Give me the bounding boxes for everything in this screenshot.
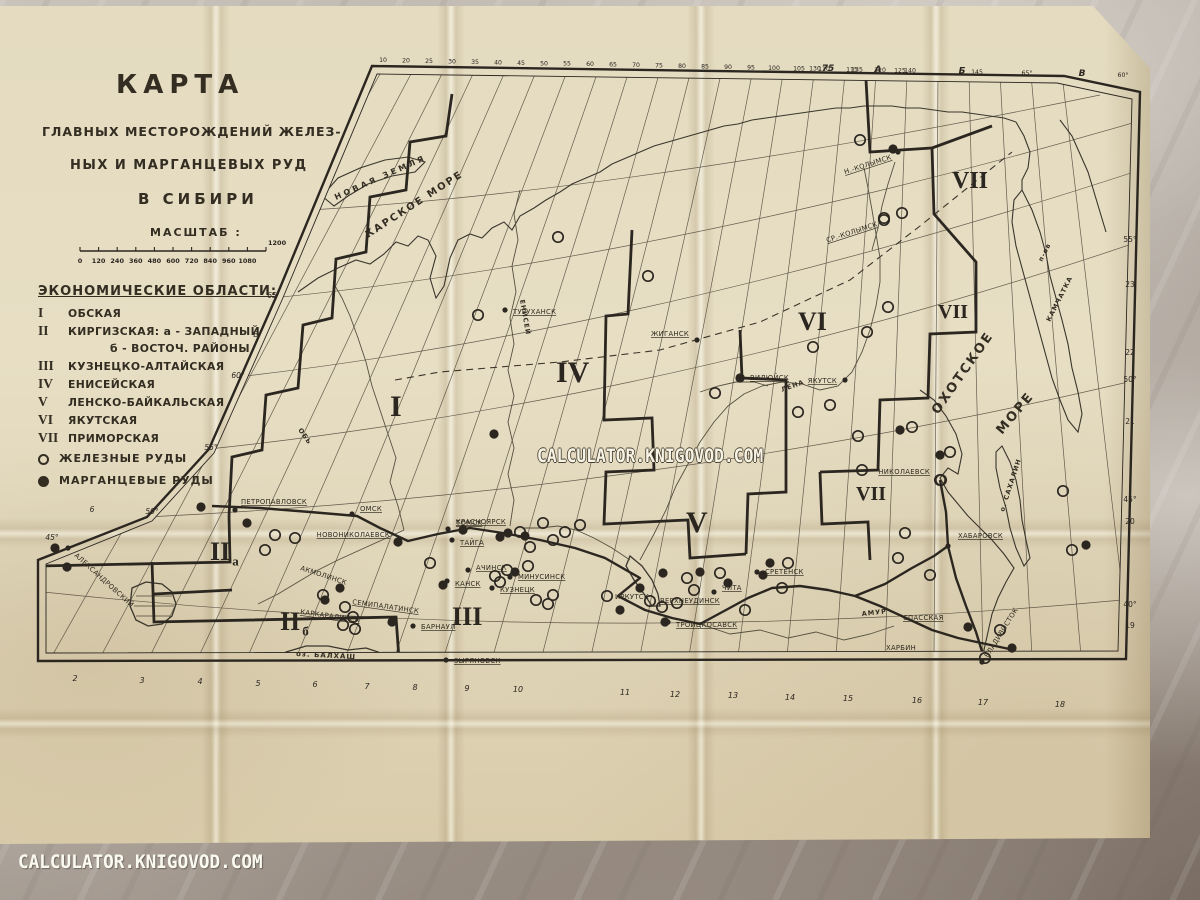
scale-tick-number: 960 xyxy=(222,257,236,265)
iron-ore-symbol xyxy=(783,558,793,568)
iron-ore-symbol xyxy=(945,447,955,457)
symbol-label: ЖЕЛЕЗНЫЕ РУДЫ xyxy=(59,449,187,469)
top-edge-number: 10 xyxy=(379,57,387,64)
iron-ore-symbol xyxy=(473,310,483,320)
bottom-edge-number: 11 xyxy=(620,688,630,697)
region-name: ЯКУТСКАЯ xyxy=(68,412,137,429)
region-numeral: V xyxy=(38,393,68,410)
top-edge-number: 60° xyxy=(1118,71,1129,79)
city-label: СРЕТЕНСК xyxy=(765,568,804,576)
manganese-ore-symbol xyxy=(963,622,972,631)
city-dot xyxy=(393,537,402,546)
scale-end-number: 1200 xyxy=(268,239,287,247)
iron-ore-icon xyxy=(38,454,49,465)
city-label: КАРКАРАЛИНСК xyxy=(300,608,361,624)
city-label: ЖИГАНСК xyxy=(651,330,689,338)
city-dot xyxy=(502,307,507,312)
city-dot xyxy=(449,537,454,542)
city-label: ТАЙГА xyxy=(459,538,484,547)
legend-region-row: VII ПРИМОРСКАЯ xyxy=(38,429,306,447)
top-edge-number: 70 xyxy=(632,62,640,69)
city-dot xyxy=(503,528,512,537)
bottom-edge-number: 10 xyxy=(513,685,523,694)
city-label: АЛЕКСАНДРОВСКИЙ xyxy=(73,551,136,609)
region-name: ПРИМОРСКАЯ xyxy=(68,430,159,447)
bottom-edge-number: 12 xyxy=(670,690,680,699)
bottom-edge-number: 13 xyxy=(728,691,738,700)
meridian-line xyxy=(444,74,628,656)
iron-ore-symbol xyxy=(525,542,535,552)
parallel-line xyxy=(44,592,1122,623)
city-label: ТРОИЦКОСАВСК xyxy=(675,621,737,629)
city-label: НИКОЛАЕВСК xyxy=(878,468,930,476)
manganese-ore-symbol xyxy=(635,583,644,592)
manganese-ore-symbol xyxy=(1007,643,1016,652)
manganese-ore-symbol xyxy=(196,502,205,511)
city-label: ЗЫРЯНОВСК xyxy=(454,657,501,665)
top-edge-number: 85 xyxy=(701,64,709,71)
right-edge-number: 55° xyxy=(1123,235,1137,244)
iron-ore-symbol xyxy=(538,518,548,528)
coastline xyxy=(1016,122,1030,190)
legend-symbol-row-manganese: МАРГАНЦЕВЫЕ РУДЫ xyxy=(38,471,306,491)
iron-ore-symbol xyxy=(900,528,910,538)
top-edge-number: 40 xyxy=(494,59,502,66)
meridian-line xyxy=(1000,74,1032,656)
iron-ore-symbol xyxy=(862,327,872,337)
top-edge-number: 45 xyxy=(517,60,525,67)
top-edge-number: 145 xyxy=(971,69,983,76)
meridian-line xyxy=(640,74,752,656)
region-numeral-label: VI xyxy=(798,307,827,336)
city-dot xyxy=(443,657,448,662)
iron-ore-symbol xyxy=(560,527,570,537)
scale-bar: 012024036048060072084096010801200 xyxy=(78,239,287,265)
right-edge-number: 40° xyxy=(1123,600,1137,609)
region-boundary xyxy=(152,562,399,659)
region-numeral-label: IV xyxy=(556,356,590,389)
city-label: ТУРУХАНСК xyxy=(512,308,556,316)
city-dot xyxy=(444,578,449,583)
iron-ore-symbol xyxy=(340,602,350,612)
scale-tick-number: 1080 xyxy=(238,257,257,265)
right-edge-number: 45° xyxy=(1123,495,1137,504)
legend-region-row: б - ВОСТОЧ. РАЙОНЫ xyxy=(38,340,306,357)
region-numeral-label: IIа xyxy=(210,537,239,569)
city-label: БАРНАУЛ xyxy=(421,623,456,631)
right-edge-number: 21 xyxy=(1125,417,1135,426)
city-dot xyxy=(232,507,237,512)
region-numeral: I xyxy=(38,304,68,321)
geo-label: АМУР xyxy=(861,607,887,618)
coastline xyxy=(298,106,1016,298)
legend-region-row: IV ЕНИСЕЙСКАЯ xyxy=(38,375,306,393)
region-name: ЛЕНСКО-БАЙКАЛЬСКАЯ xyxy=(68,394,224,411)
bottom-edge-number: 2 xyxy=(72,674,77,683)
right-edge-number: 20 xyxy=(1125,517,1135,526)
city-dot xyxy=(65,545,70,550)
bottom-edge-number: 9 xyxy=(464,684,469,693)
region-numeral-label: III xyxy=(452,602,482,631)
city-label: ИРКУТСК xyxy=(615,593,649,601)
city-label: Н.-КОЛЫМСК xyxy=(843,153,893,176)
top-edge-number: 90 xyxy=(724,64,732,71)
city-dot xyxy=(507,574,512,579)
top-edge-number: 25 xyxy=(425,58,433,65)
region-numeral: III xyxy=(38,357,68,374)
top-edge-number: 95 xyxy=(747,64,755,71)
iron-ore-symbol xyxy=(853,431,863,441)
geo-label: ЕНИСЕЙ xyxy=(518,299,533,336)
city-dot xyxy=(665,619,670,624)
top-edge-number: 55 xyxy=(563,61,571,68)
bottom-edge-number: 8 xyxy=(412,683,417,692)
right-edge-number: 23 xyxy=(1125,280,1135,289)
river xyxy=(508,190,520,526)
map-subtitle-2: НЫХ И МАРГАНЦЕВЫХ РУД xyxy=(70,158,308,173)
legend-region-row: V ЛЕНСКО-БАЙКАЛЬСКАЯ xyxy=(38,393,306,411)
iron-ore-symbol xyxy=(425,558,435,568)
left-edge-number: 45° xyxy=(45,533,59,542)
city-dot xyxy=(895,149,900,154)
legend-region-row: II КИРГИЗСКАЯ: а - ЗАПАДНЫЙ xyxy=(38,322,306,340)
iron-ore-symbol xyxy=(682,573,692,583)
scale-tick-number: 720 xyxy=(185,257,199,265)
scale-tick-number: 360 xyxy=(129,257,143,265)
bottom-edge-number: 17 xyxy=(978,698,989,707)
region-numeral-label: VII xyxy=(938,301,968,323)
photo-of-folded-map: IIIаIIбIIIIVVVIVIIVIIVIIТУРУХАНСКЖИГАНСК… xyxy=(0,0,1200,900)
city-label: НОВОНИКОЛАЕВСК xyxy=(317,531,390,539)
city-dot xyxy=(489,585,494,590)
scale-tick-number: 840 xyxy=(203,257,217,265)
bottom-edge-number: 16 xyxy=(912,696,922,705)
top-edge-number: 100 xyxy=(768,65,780,72)
scale-label: МАСШТАБ : xyxy=(150,226,242,239)
scale-tick-number: 240 xyxy=(110,257,124,265)
watermark-corner: CALCULATOR.KNIGOVOD.COM xyxy=(18,851,263,873)
city-dot xyxy=(754,569,759,574)
region-numeral-label: VII xyxy=(856,483,886,505)
city-dot xyxy=(445,526,450,531)
left-edge-number: 50° xyxy=(145,507,159,516)
iron-ore-symbol xyxy=(710,388,720,398)
iron-ore-symbol xyxy=(825,400,835,410)
right-edge-number: 22 xyxy=(1125,348,1135,357)
city-label: КАНСК xyxy=(455,580,481,588)
legend-region-row: III КУЗНЕЦКО-АЛТАЙСКАЯ xyxy=(38,357,306,375)
river xyxy=(640,168,880,560)
manganese-ore-symbol xyxy=(895,425,904,434)
top-edge-number: 20 xyxy=(402,58,410,65)
top-edge-number: 65° xyxy=(1022,69,1033,77)
bottom-edge-number: 4 xyxy=(197,677,202,686)
iron-ore-symbol xyxy=(575,520,585,530)
city-label: ХАРБИН xyxy=(886,644,916,652)
city-label: КУЗНЕЦК xyxy=(500,586,535,594)
city-dot xyxy=(739,374,744,379)
iron-ore-symbol xyxy=(808,342,818,352)
legend-region-row: VI ЯКУТСКАЯ xyxy=(38,411,306,429)
map-subtitle-1: ГЛАВНЫХ МЕСТОРОЖДЕНИЙ ЖЕЛЕЗ- xyxy=(42,124,342,139)
region-numeral: VI xyxy=(38,411,68,428)
region-numeral: VII xyxy=(38,429,68,446)
manganese-ore-symbol xyxy=(935,450,944,459)
region-boundary xyxy=(932,126,992,148)
city-label: СПАССКАЯ xyxy=(903,614,944,622)
iron-ore-symbol xyxy=(715,568,725,578)
symbol-label: МАРГАНЦЕВЫЕ РУДЫ xyxy=(59,471,214,491)
iron-ore-symbol xyxy=(893,553,903,563)
geo-label: о. САХАЛИН xyxy=(998,458,1023,513)
scale-tick-number: 480 xyxy=(148,257,162,265)
city-label: ЧИТА xyxy=(722,584,742,592)
manganese-ore-symbol xyxy=(520,531,529,540)
geo-label: п-ов xyxy=(1037,242,1053,263)
top-edge-number: 35 xyxy=(471,59,479,66)
legend-region-row: I ОБСКАЯ xyxy=(38,304,306,322)
region-name: ОБСКАЯ xyxy=(68,305,121,322)
city-label: СЕМИПАЛАТИНСК xyxy=(352,598,420,615)
iron-ore-symbol xyxy=(270,530,280,540)
iron-ore-symbol xyxy=(523,561,533,571)
top-edge-number: 105 xyxy=(793,65,805,72)
scale-tick-number: 600 xyxy=(166,257,180,265)
region-name: ЕНИСЕЙСКАЯ xyxy=(68,376,155,393)
top-edge-number: В xyxy=(1079,69,1086,79)
manganese-ore-symbol xyxy=(1081,540,1090,549)
manganese-ore-symbol xyxy=(387,617,396,626)
iron-ore-symbol xyxy=(531,595,541,605)
map-title: КАРТА xyxy=(116,70,244,100)
region-numeral: IV xyxy=(38,375,68,392)
iron-ore-symbol xyxy=(925,570,935,580)
river xyxy=(258,530,404,604)
manganese-ore-symbol xyxy=(658,568,667,577)
manganese-ore-symbol xyxy=(695,567,704,576)
bottom-edge-number: 18 xyxy=(1055,700,1065,709)
manganese-ore-symbol xyxy=(615,605,624,614)
region-boundary xyxy=(154,590,232,594)
city-dot xyxy=(945,543,950,548)
city-dot xyxy=(349,511,354,516)
region-numeral-label: I xyxy=(390,390,402,423)
city-label: СР.-КОЛЫМСК xyxy=(825,220,878,244)
city-dot xyxy=(979,659,984,664)
scale-tick-number: 120 xyxy=(92,257,106,265)
city-label: ОМСК xyxy=(360,505,382,513)
region-name: КУЗНЕЦКО-АЛТАЙСКАЯ xyxy=(68,358,224,375)
legend-symbol-row-iron: ЖЕЛЕЗНЫЕ РУДЫ xyxy=(38,449,306,469)
top-edge-number: 60 xyxy=(586,61,594,68)
top-edge-number: 80 xyxy=(678,63,686,70)
bottom-edge-number: 15 xyxy=(843,694,853,703)
railway-line xyxy=(948,546,984,658)
city-label: ЯКУТСК xyxy=(808,377,837,385)
manganese-ore-symbol xyxy=(62,562,71,571)
manganese-ore-symbol xyxy=(765,558,774,567)
top-edge-number: 30 xyxy=(448,58,456,65)
river xyxy=(872,162,895,250)
top-edge-number: 140 xyxy=(904,68,916,75)
region-numeral: II xyxy=(38,322,68,339)
scale-tick-number: 0 xyxy=(78,257,83,265)
manganese-ore-symbol xyxy=(489,429,498,438)
city-label: ВЕРХНЕУДИНСК xyxy=(660,597,720,605)
top-edge-number: А xyxy=(874,65,882,75)
bottom-edge-number: 3 xyxy=(139,676,144,685)
geo-label: МОРЕ xyxy=(994,389,1038,437)
parallel-line xyxy=(237,172,1134,377)
manganese-ore-symbol xyxy=(495,532,504,541)
top-edge-number: 75 xyxy=(822,64,835,74)
city-label: ПЕТРОПАВЛОВСК xyxy=(241,498,307,506)
iron-ore-symbol xyxy=(553,232,563,242)
region-name: б - ВОСТОЧ. РАЙОНЫ xyxy=(68,340,250,357)
city-label: МИНУСИНСК xyxy=(518,573,565,581)
bottom-edge-number: 7 xyxy=(364,682,370,691)
meridian-line xyxy=(934,74,938,656)
map-subtitle-3: В СИБИРИ xyxy=(138,190,258,208)
region-boundary xyxy=(40,516,230,566)
top-edge-number: Б xyxy=(959,67,966,77)
bottom-edge-number: 6 xyxy=(312,680,317,689)
iron-ore-symbol xyxy=(793,407,803,417)
bottom-edge-number: 5 xyxy=(255,679,260,688)
geo-label: ОХОТСКОЕ xyxy=(929,329,997,417)
legend-header: ЭКОНОМИЧЕСКИЕ ОБЛАСТИ: xyxy=(38,284,306,299)
city-label: ТОМСК xyxy=(455,519,482,527)
meridian-line xyxy=(1031,74,1081,656)
city-dot xyxy=(711,589,716,594)
city-dot xyxy=(410,623,415,628)
right-edge-number: 19 xyxy=(1125,621,1135,630)
top-edge-number: 50 xyxy=(540,60,548,67)
iron-ore-symbol xyxy=(290,533,300,543)
city-dot xyxy=(465,567,470,572)
iron-ore-symbol xyxy=(543,599,553,609)
region-numeral-label: V xyxy=(686,506,708,539)
manganese-ore-symbol xyxy=(50,543,59,552)
arctic-circle-dashed xyxy=(395,152,1012,380)
left-edge-number: 6 xyxy=(90,505,95,514)
region-name: КИРГИЗСКАЯ: а - ЗАПАДНЫЙ xyxy=(68,323,260,340)
manganese-ore-icon xyxy=(38,476,49,487)
city-label: ВИЛЮЙСК xyxy=(750,373,789,382)
iron-ore-symbol xyxy=(643,271,653,281)
iron-ore-symbol xyxy=(260,545,270,555)
legend: ЭКОНОМИЧЕСКИЕ ОБЛАСТИ: I ОБСКАЯ II КИРГИ… xyxy=(38,284,306,491)
city-circle xyxy=(602,591,612,601)
right-edge-number: 50° xyxy=(1123,375,1137,384)
iron-ore-symbol xyxy=(689,585,699,595)
manganese-ore-symbol xyxy=(242,518,251,527)
city-dot xyxy=(842,377,847,382)
top-edge-number: 130 xyxy=(809,66,821,73)
city-dot xyxy=(694,337,699,342)
city-label: ХАБАРОВСК xyxy=(958,532,1003,540)
top-edge-number: 75 xyxy=(655,63,663,70)
iron-ore-symbol xyxy=(883,302,893,312)
top-edge-number: 135 xyxy=(851,67,863,74)
city-label: АЧИНСК xyxy=(476,564,507,572)
top-edge-number: 65 xyxy=(609,62,617,69)
iron-ore-symbol xyxy=(740,605,750,615)
region-boundary xyxy=(740,330,786,554)
region-boundary xyxy=(820,80,976,472)
watermark-center: CALCULATOR.KNIGOVOD.COM xyxy=(537,445,763,467)
bottom-edge-number: 14 xyxy=(785,693,795,702)
manganese-ore-symbol xyxy=(320,595,329,604)
iron-ore-symbol xyxy=(855,135,865,145)
region-numeral-label: VII xyxy=(952,168,988,194)
